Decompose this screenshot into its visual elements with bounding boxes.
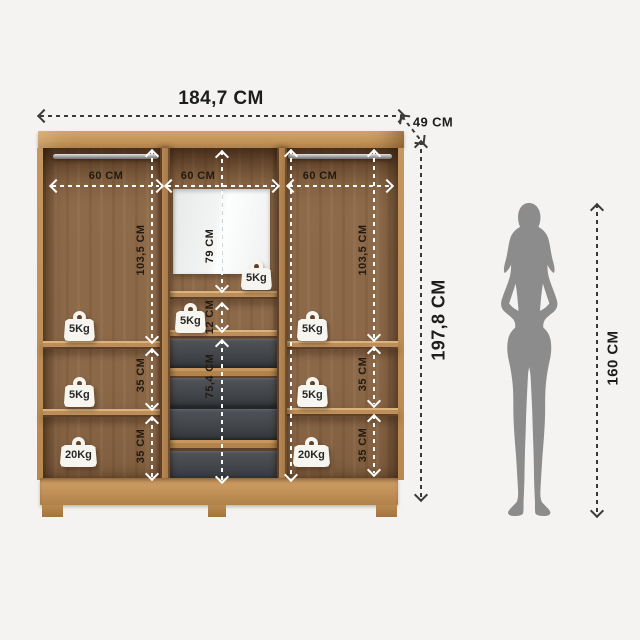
weight-badge: 5Kg bbox=[297, 377, 328, 407]
left-width-line bbox=[52, 185, 159, 187]
drawers-height-line bbox=[221, 340, 223, 480]
weight-label: 5Kg bbox=[241, 268, 272, 290]
person-height-label: 160 CM bbox=[605, 331, 622, 386]
person-height-line bbox=[596, 204, 598, 514]
arrow-up-icon bbox=[590, 203, 604, 217]
weight-badge: 20Kg bbox=[60, 437, 97, 467]
person-silhouette bbox=[477, 200, 581, 520]
weight-badge: 20Kg bbox=[293, 437, 330, 467]
drawer-2 bbox=[169, 378, 278, 407]
overall-width-label: 184,7 CM bbox=[178, 88, 264, 110]
weight-badge: 5Kg bbox=[64, 311, 95, 341]
wardrobe-top-panel bbox=[38, 131, 404, 148]
left-hanging-line bbox=[151, 150, 153, 340]
niche-height-label: 12 CM bbox=[204, 300, 216, 334]
weight-badge: 5Kg bbox=[241, 260, 272, 290]
foot-middle bbox=[208, 505, 226, 517]
weight-label: 5Kg bbox=[175, 311, 206, 333]
divider-right bbox=[277, 148, 287, 480]
shelf-right-1 bbox=[287, 341, 398, 349]
overall-height-line bbox=[420, 141, 422, 498]
drawer-3 bbox=[169, 409, 278, 440]
drawer-rail-2 bbox=[169, 440, 278, 451]
wardrobe-dimension-diagram: 184,7 CM 49 CM 197,8 CM 60 CM 60 CM 60 C… bbox=[0, 0, 640, 640]
drawer-rail-1 bbox=[169, 368, 278, 378]
weight-label: 5Kg bbox=[297, 319, 328, 341]
arrow-up-left-icon bbox=[399, 114, 410, 125]
divider-left bbox=[160, 148, 170, 480]
arrow-left-icon bbox=[37, 109, 51, 123]
left-gap1-label: 35 CM bbox=[135, 358, 147, 392]
weight-label: 5Kg bbox=[297, 385, 328, 407]
arrow-down-icon bbox=[414, 488, 428, 502]
foot-right bbox=[376, 505, 397, 517]
arrow-down-icon bbox=[590, 504, 604, 518]
weight-badge: 5Kg bbox=[64, 377, 95, 407]
shelf-left-1 bbox=[43, 341, 160, 349]
right-hanging-line bbox=[373, 150, 375, 338]
hanging-rod-left bbox=[53, 154, 159, 159]
weight-label: 20Kg bbox=[60, 445, 97, 467]
left-hanging-label: 103,5 CM bbox=[135, 225, 147, 276]
left-width-label: 60 CM bbox=[89, 170, 123, 182]
drawers-height-label: 75,4 CM bbox=[204, 354, 216, 398]
overall-height-label: 197,8 CM bbox=[429, 279, 450, 360]
weight-label: 5Kg bbox=[64, 385, 95, 407]
right-hanging-label: 103,5 CM bbox=[357, 225, 369, 276]
weight-badge: 5Kg bbox=[175, 303, 206, 333]
weight-label: 5Kg bbox=[64, 319, 95, 341]
mirror-height-line bbox=[221, 151, 223, 289]
weight-label: 20Kg bbox=[293, 445, 330, 467]
foot-left bbox=[42, 505, 63, 517]
wardrobe-right-outer-edge bbox=[398, 148, 404, 480]
right-gap1-label: 35 CM bbox=[357, 357, 369, 391]
right-width-label: 60 CM bbox=[303, 170, 337, 182]
overall-width-line bbox=[40, 115, 401, 117]
shelf-left-2 bbox=[43, 409, 160, 417]
left-gap2-label: 35 CM bbox=[135, 429, 147, 463]
overall-depth-label: 49 CM bbox=[413, 115, 453, 130]
shelf-right-2 bbox=[287, 408, 398, 416]
shelf-under-mirror bbox=[170, 291, 277, 299]
mirror-height-label: 79 CM bbox=[204, 229, 216, 263]
weight-badge: 5Kg bbox=[297, 311, 328, 341]
middle-right-guide-line bbox=[290, 150, 292, 478]
right-gap2-label: 35 CM bbox=[357, 428, 369, 462]
middle-width-label: 60 CM bbox=[181, 170, 215, 182]
